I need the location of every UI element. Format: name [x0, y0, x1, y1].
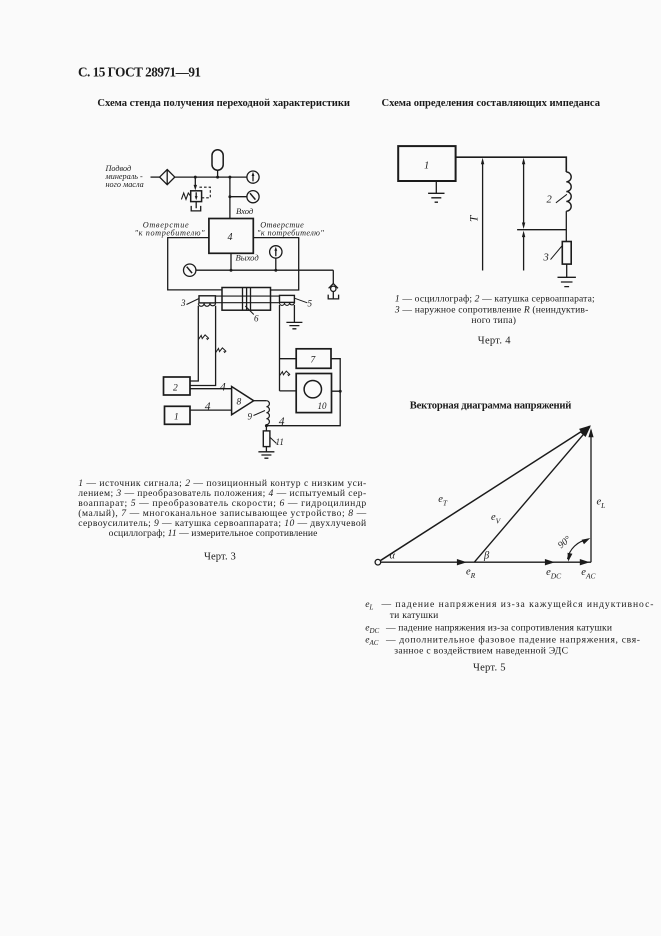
- svg-text:90°: 90°: [556, 534, 573, 551]
- svg-text:Векторная диаграмма напряжений: Векторная диаграмма напряжений: [410, 401, 572, 412]
- svg-text:4: 4: [220, 382, 226, 394]
- svg-text:1: 1: [424, 161, 429, 172]
- svg-text:6: 6: [254, 314, 259, 324]
- svg-text:eAC: eAC: [581, 567, 596, 581]
- svg-text:5: 5: [308, 299, 313, 309]
- svg-text:eDC: eDC: [365, 623, 379, 636]
- svg-text:eV: eV: [491, 512, 502, 526]
- svg-text:Выход: Выход: [236, 253, 260, 263]
- svg-text:3 — наружное сопротивление R (: 3 — наружное сопротивление R (неиндуктив…: [394, 305, 588, 316]
- svg-text:Черт. 3: Черт. 3: [204, 552, 236, 563]
- svg-text:11: 11: [276, 437, 284, 447]
- svg-text:eT: eT: [438, 494, 448, 508]
- svg-text:Т: Т: [469, 214, 481, 222]
- svg-text:2: 2: [547, 195, 553, 206]
- svg-text:— падение напряжения из-за каж: — падение напряжения из-за кажущейся инд…: [381, 599, 654, 610]
- svg-text:Схема определения составляющих: Схема определения составляющих импеданса: [382, 98, 601, 109]
- svg-text:— падение напряжения из-за соп: — падение напряжения из-за сопротивления…: [385, 623, 612, 634]
- svg-text:Черт. 4: Черт. 4: [478, 336, 511, 347]
- svg-text:Черт. 5: Черт. 5: [473, 663, 506, 674]
- svg-text:Вход: Вход: [236, 206, 254, 216]
- svg-text:— дополнительное фазовое паден: — дополнительное фазовое падение напряже…: [385, 635, 640, 646]
- svg-text:"к потребителю": "к потребителю": [135, 229, 206, 238]
- svg-text:4: 4: [228, 232, 233, 243]
- svg-text:1 — осциллограф; 2 — катушка с: 1 — осциллограф; 2 — катушка сервоаппара…: [395, 294, 595, 305]
- svg-text:eL: eL: [365, 599, 373, 612]
- svg-text:7: 7: [311, 356, 317, 366]
- svg-text:β: β: [483, 551, 490, 562]
- svg-text:1: 1: [174, 413, 179, 423]
- svg-text:"к потребителю": "к потребителю": [257, 229, 324, 238]
- svg-text:4: 4: [205, 401, 211, 413]
- svg-text:осциллограф; 11 — измерительно: осциллограф; 11 — измерительное сопротив…: [109, 528, 318, 539]
- svg-text:α: α: [390, 551, 396, 562]
- svg-text:eDC: eDC: [546, 567, 562, 581]
- svg-text:занное с воздействием наведенн: занное с воздействием наведенной ЭДС: [394, 646, 568, 657]
- svg-text:3: 3: [543, 253, 549, 264]
- svg-text:ти катушки: ти катушки: [390, 610, 439, 621]
- svg-text:10: 10: [318, 401, 328, 411]
- svg-text:С. 15 ГОСТ 28971—91: С. 15 ГОСТ 28971—91: [78, 65, 201, 80]
- svg-text:2: 2: [173, 384, 178, 394]
- svg-text:ного типа): ного типа): [471, 315, 516, 326]
- svg-text:eR: eR: [466, 567, 476, 581]
- svg-text:Схема стенда получения переход: Схема стенда получения переходной характ…: [97, 98, 350, 109]
- svg-text:eAC: eAC: [365, 635, 379, 648]
- svg-text:3: 3: [180, 298, 186, 308]
- svg-text:eL: eL: [597, 497, 606, 511]
- svg-text:8: 8: [237, 398, 242, 408]
- svg-text:9: 9: [248, 412, 253, 422]
- svg-text:ного масла: ного масла: [106, 180, 144, 189]
- svg-text:4: 4: [279, 416, 285, 428]
